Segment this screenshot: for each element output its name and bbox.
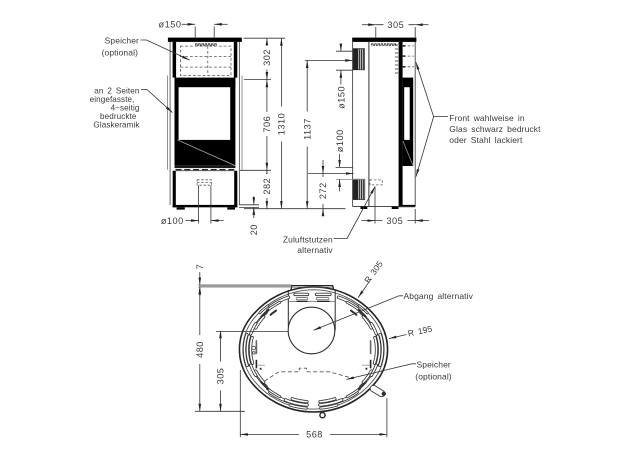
svg-text:bedruckte: bedruckte [100, 112, 137, 121]
svg-text:305: 305 [387, 20, 404, 30]
svg-text:ø150: ø150 [337, 86, 347, 109]
svg-text:7: 7 [195, 264, 205, 270]
svg-text:alternativ: alternativ [297, 245, 333, 255]
svg-text:R 195: R 195 [407, 323, 433, 338]
svg-text:ø150: ø150 [159, 20, 182, 30]
svg-text:(optional): (optional) [415, 371, 452, 381]
svg-text:(optional): (optional) [102, 47, 139, 57]
svg-text:272: 272 [318, 182, 328, 199]
svg-text:Speicher: Speicher [417, 359, 451, 369]
svg-text:305: 305 [386, 216, 403, 226]
svg-text:20: 20 [249, 224, 259, 235]
svg-text:706: 706 [262, 116, 272, 133]
svg-text:1310: 1310 [277, 113, 287, 135]
svg-text:Abgang alternativ: Abgang alternativ [404, 291, 474, 301]
svg-text:R 305: R 305 [362, 259, 385, 285]
svg-text:ø100: ø100 [161, 216, 184, 226]
svg-text:Zuluftstutzen: Zuluftstutzen [283, 235, 333, 245]
svg-text:oder Stahl lackiert: oder Stahl lackiert [449, 135, 523, 145]
svg-text:568: 568 [306, 430, 323, 440]
svg-text:302: 302 [262, 49, 272, 66]
svg-text:Glas schwarz bedruckt: Glas schwarz bedruckt [449, 124, 541, 134]
svg-text:ø100: ø100 [335, 129, 345, 152]
svg-text:Speicher: Speicher [105, 35, 139, 45]
svg-text:Glaskeramik: Glaskeramik [93, 121, 140, 130]
svg-text:305: 305 [216, 368, 226, 385]
svg-text:1137: 1137 [302, 118, 312, 140]
svg-text:eingefasste,: eingefasste, [90, 95, 135, 104]
svg-text:480: 480 [195, 341, 205, 358]
svg-text:Front wahlweise in: Front wahlweise in [449, 113, 525, 123]
svg-text:282: 282 [262, 178, 272, 195]
